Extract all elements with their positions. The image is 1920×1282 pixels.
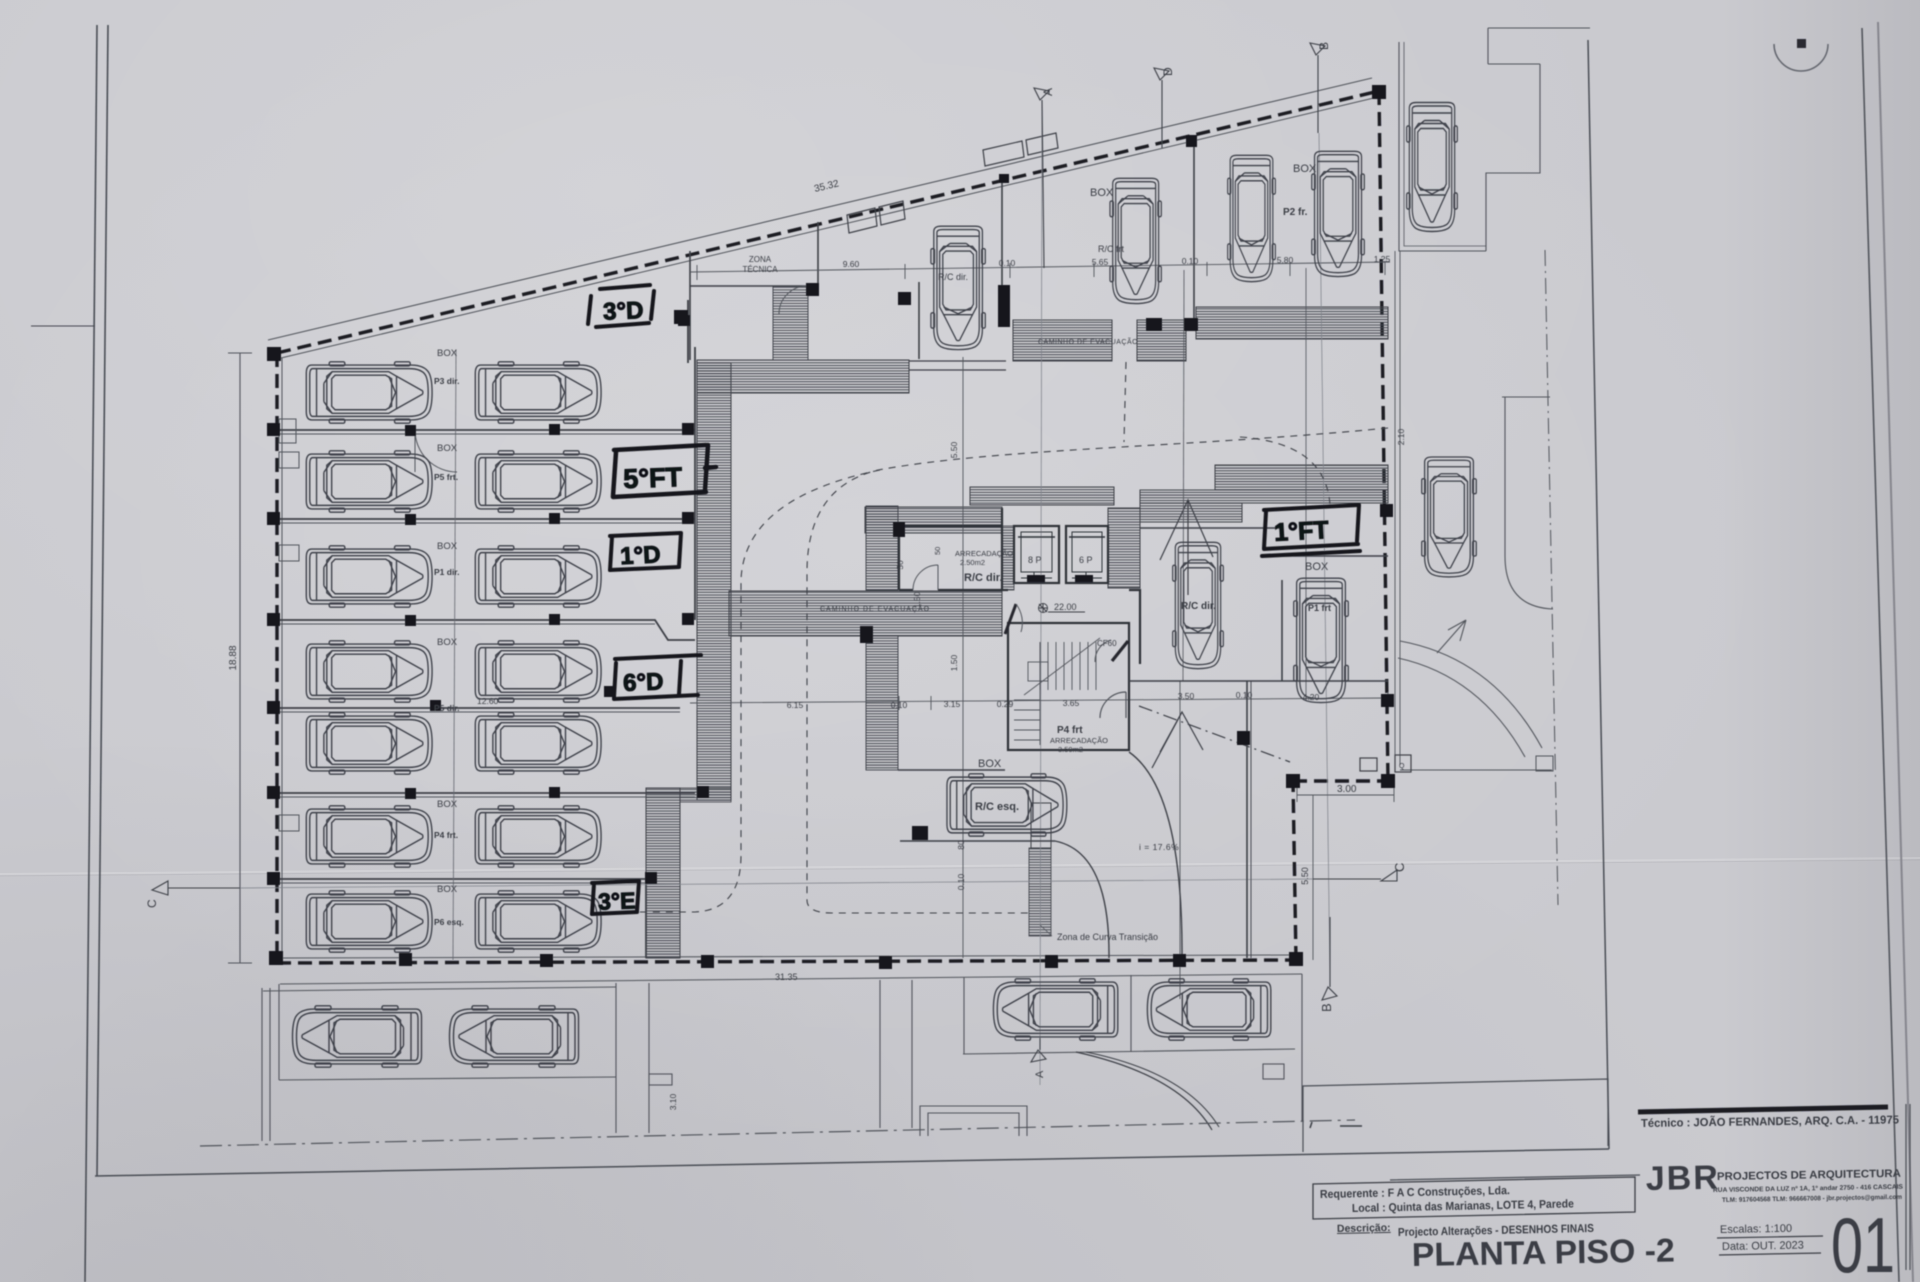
svg-text:3°D: 3°D [603, 297, 644, 325]
svg-text:Q: Q [1399, 763, 1405, 770]
svg-text:P6 esq.: P6 esq. [434, 917, 464, 927]
svg-text:6°D: 6°D [623, 668, 664, 696]
svg-text:P1 frt: P1 frt [1308, 603, 1331, 613]
svg-text:P1 dir.: P1 dir. [434, 567, 460, 577]
svg-text:R/C esq.: R/C esq. [975, 801, 1019, 813]
svg-text:3.65: 3.65 [1063, 698, 1080, 708]
svg-text:A: A [1041, 88, 1055, 96]
svg-text:2.50m2: 2.50m2 [960, 558, 985, 567]
svg-text:1.50: 1.50 [912, 591, 922, 608]
svg-text:0.10: 0.10 [891, 700, 908, 710]
svg-text:CF60: CF60 [1097, 639, 1117, 648]
svg-text:5°FT: 5°FT [623, 462, 683, 494]
svg-text:Descrição:: Descrição: [1337, 1222, 1391, 1235]
svg-text:BOX: BOX [1293, 163, 1317, 175]
svg-text:TÉCNICA: TÉCNICA [742, 265, 778, 274]
svg-text:B: B [1319, 1003, 1334, 1012]
svg-text:BOX: BOX [1305, 561, 1329, 573]
svg-text:R/C frt: R/C frt [1098, 244, 1124, 254]
svg-text:80: 80 [956, 840, 966, 850]
svg-text:B: B [1317, 42, 1331, 50]
svg-text:18.88: 18.88 [228, 645, 239, 670]
svg-text:P5 dir.: P5 dir. [434, 703, 460, 713]
svg-text:Zona de Curva Transição: Zona de Curva Transição [1057, 932, 1158, 942]
svg-text:1°FT: 1°FT [1274, 516, 1330, 547]
svg-text:i = 17.6%: i = 17.6% [1139, 842, 1179, 852]
svg-text:P5 frt.: P5 frt. [434, 472, 458, 482]
svg-text:6 P: 6 P [1079, 555, 1093, 565]
svg-text:C: C [145, 899, 159, 908]
svg-text:2.10: 2.10 [1396, 428, 1406, 445]
svg-text:0.10: 0.10 [999, 258, 1016, 268]
svg-text:3.00: 3.00 [1337, 784, 1357, 795]
svg-text:6.15: 6.15 [787, 700, 804, 710]
svg-text:8 P: 8 P [1028, 555, 1042, 565]
svg-text:ZONA: ZONA [749, 255, 772, 264]
svg-text:BOX: BOX [437, 348, 458, 359]
svg-text:C: C [1392, 863, 1407, 872]
svg-text:0.29: 0.29 [997, 699, 1014, 709]
svg-text:5.50: 5.50 [949, 441, 959, 458]
svg-text:JBR: JBR [1645, 1159, 1720, 1198]
svg-text:R/C dir.: R/C dir. [938, 272, 968, 282]
svg-text:50: 50 [933, 547, 942, 555]
svg-text:BOX: BOX [978, 758, 1002, 770]
svg-text:ARRECADAÇÃO: ARRECADAÇÃO [1050, 736, 1108, 745]
svg-text:BOX: BOX [1090, 187, 1114, 199]
svg-text:5.50: 5.50 [1300, 867, 1310, 885]
svg-text:12.60: 12.60 [477, 696, 499, 706]
svg-text:Data: OUT. 2023: Data: OUT. 2023 [1722, 1240, 1804, 1253]
svg-text:0.10: 0.10 [1182, 256, 1199, 266]
svg-text:3.10: 3.10 [668, 1093, 678, 1110]
svg-text:0.10: 0.10 [1236, 690, 1253, 700]
svg-text:P4 frt.: P4 frt. [434, 830, 458, 840]
svg-text:01: 01 [1831, 1201, 1895, 1282]
svg-text:3°E: 3°E [598, 887, 636, 914]
svg-text:1.50: 1.50 [949, 654, 959, 671]
svg-text:5.65: 5.65 [1092, 257, 1109, 267]
svg-text:R/C dir.: R/C dir. [964, 572, 1003, 584]
svg-text:31.35: 31.35 [775, 972, 798, 982]
svg-text:BOX: BOX [437, 637, 458, 648]
svg-text:D: D [1161, 67, 1175, 76]
svg-text:R/C dir.: R/C dir. [1181, 601, 1216, 612]
svg-text:P2 fr.: P2 fr. [1283, 207, 1308, 218]
svg-text:50: 50 [895, 560, 905, 570]
svg-text:5.80: 5.80 [1277, 255, 1294, 265]
svg-text:1.25: 1.25 [1374, 254, 1391, 264]
svg-text:BOX: BOX [437, 799, 458, 810]
svg-text:BOX: BOX [437, 443, 458, 454]
svg-text:3.15: 3.15 [944, 699, 961, 709]
svg-text:P3 dir.: P3 dir. [434, 376, 460, 386]
svg-text:0.10: 0.10 [956, 873, 966, 890]
svg-text:3.50m2: 3.50m2 [1058, 745, 1083, 754]
svg-text:PLANTA PISO -2: PLANTA PISO -2 [1411, 1231, 1675, 1273]
svg-text:22.00: 22.00 [1054, 602, 1077, 612]
svg-text:ARRECADAÇÃO: ARRECADAÇÃO [955, 549, 1013, 558]
svg-text:3.50: 3.50 [1178, 691, 1195, 701]
svg-text:P4 frt: P4 frt [1057, 725, 1083, 736]
svg-text:9.60: 9.60 [843, 259, 860, 269]
svg-text:BOX: BOX [437, 541, 458, 552]
svg-text:Escalas: 1:100: Escalas: 1:100 [1720, 1223, 1792, 1236]
svg-text:BOX: BOX [437, 884, 458, 895]
svg-text:A: A [1034, 1070, 1046, 1078]
svg-text:4.20: 4.20 [1303, 692, 1320, 702]
svg-text:CAMINHO DE EVACUAÇÃO: CAMINHO DE EVACUAÇÃO [1038, 337, 1138, 346]
svg-text:1°D: 1°D [620, 541, 662, 570]
